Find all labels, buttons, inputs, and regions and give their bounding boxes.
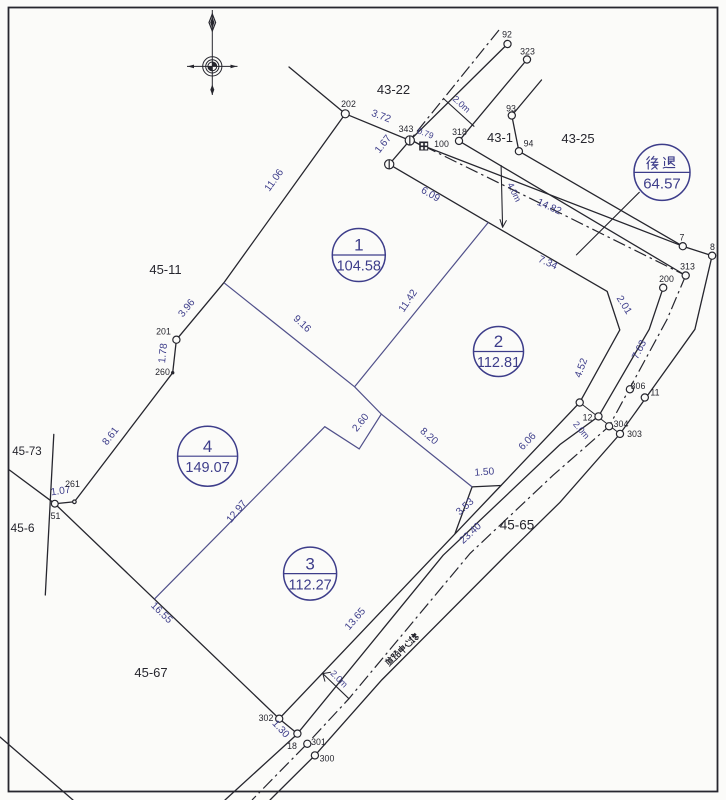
svg-text:45-67: 45-67 <box>134 665 167 680</box>
svg-text:11: 11 <box>650 388 659 398</box>
svg-text:302: 302 <box>259 713 274 723</box>
svg-text:4: 4 <box>203 437 212 456</box>
svg-text:313: 313 <box>680 262 695 272</box>
svg-text:261: 261 <box>65 479 80 489</box>
svg-text:323: 323 <box>520 47 535 57</box>
svg-text:12: 12 <box>583 413 593 423</box>
svg-text:104.58: 104.58 <box>337 259 381 275</box>
svg-text:202: 202 <box>341 99 356 109</box>
svg-text:112.81: 112.81 <box>477 355 520 371</box>
svg-text:260: 260 <box>155 367 170 377</box>
svg-text:94: 94 <box>524 139 534 149</box>
svg-text:1: 1 <box>354 236 363 255</box>
svg-text:3: 3 <box>305 554 314 573</box>
svg-text:8: 8 <box>710 242 715 252</box>
svg-text:303: 303 <box>627 429 642 439</box>
svg-text:318: 318 <box>452 127 467 137</box>
svg-text:7: 7 <box>680 233 685 243</box>
svg-text:301: 301 <box>311 737 326 747</box>
svg-text:18: 18 <box>287 741 297 751</box>
svg-text:45-73: 45-73 <box>12 446 41 458</box>
svg-text:45-6: 45-6 <box>10 521 34 535</box>
svg-text:200: 200 <box>659 274 674 284</box>
svg-text:201: 201 <box>156 327 171 337</box>
svg-text:45-65: 45-65 <box>500 518 535 533</box>
svg-text:112.27: 112.27 <box>288 577 331 593</box>
svg-text:43-1: 43-1 <box>487 130 513 145</box>
svg-text:343: 343 <box>399 124 414 134</box>
svg-text:92: 92 <box>502 30 512 40</box>
svg-text:1.50: 1.50 <box>474 466 495 478</box>
svg-text:51: 51 <box>51 511 61 521</box>
svg-text:93: 93 <box>506 104 516 114</box>
svg-text:43-22: 43-22 <box>377 82 410 97</box>
svg-text:149.07: 149.07 <box>185 460 229 476</box>
svg-text:1.78: 1.78 <box>157 342 170 363</box>
svg-text:2: 2 <box>494 332 503 351</box>
svg-text:45-11: 45-11 <box>149 262 181 277</box>
svg-text:304: 304 <box>614 419 629 429</box>
svg-text:306: 306 <box>631 381 646 391</box>
svg-text:43-25: 43-25 <box>561 131 594 146</box>
svg-text:300: 300 <box>320 754 335 764</box>
svg-text:64.57: 64.57 <box>643 175 681 192</box>
svg-text:100: 100 <box>434 139 449 149</box>
